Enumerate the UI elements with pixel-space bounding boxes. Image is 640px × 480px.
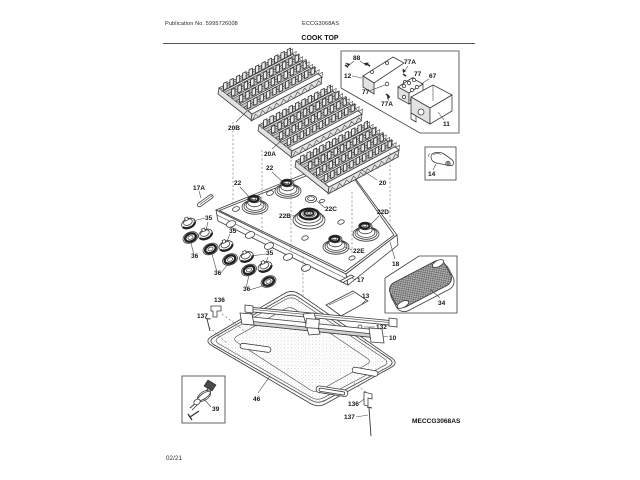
svg-text:34: 34: [438, 300, 446, 307]
svg-text:36: 36: [243, 286, 251, 293]
svg-text:10: 10: [389, 335, 397, 342]
svg-text:02/21: 02/21: [166, 455, 182, 462]
svg-text:35: 35: [266, 250, 274, 257]
svg-text:137: 137: [197, 313, 208, 320]
svg-text:35: 35: [229, 228, 237, 235]
svg-text:46: 46: [253, 396, 261, 403]
svg-text:137: 137: [344, 414, 355, 421]
svg-text:22E: 22E: [353, 248, 365, 255]
svg-text:COOK TOP: COOK TOP: [301, 35, 339, 42]
svg-text:39: 39: [212, 406, 220, 413]
svg-text:ECCG3068AS: ECCG3068AS: [302, 21, 339, 27]
svg-text:67: 67: [429, 73, 437, 80]
svg-text:18: 18: [392, 261, 400, 268]
svg-text:22: 22: [234, 180, 242, 187]
svg-text:17: 17: [357, 277, 365, 284]
svg-text:20B: 20B: [228, 125, 240, 132]
svg-text:35: 35: [205, 215, 213, 222]
svg-text:136: 136: [214, 297, 225, 304]
svg-text:20: 20: [379, 180, 387, 187]
svg-text:12: 12: [344, 73, 352, 80]
svg-text:88: 88: [353, 55, 361, 62]
svg-text:22D: 22D: [377, 209, 389, 216]
svg-text:136: 136: [348, 401, 359, 408]
svg-text:11: 11: [443, 121, 450, 128]
svg-text:20A: 20A: [264, 151, 276, 158]
svg-text:14: 14: [428, 171, 436, 178]
svg-text:22: 22: [266, 165, 274, 172]
svg-text:77: 77: [362, 89, 370, 96]
svg-text:36: 36: [191, 253, 199, 260]
svg-text:17A: 17A: [193, 185, 205, 192]
svg-text:13: 13: [362, 293, 370, 300]
svg-text:77A: 77A: [381, 101, 393, 108]
svg-text:MECCG3068AS: MECCG3068AS: [412, 418, 461, 425]
svg-text:Publication No. 5995726008: Publication No. 5995726008: [165, 21, 238, 27]
svg-text:22C: 22C: [325, 206, 337, 213]
svg-text:77A: 77A: [404, 59, 416, 66]
svg-text:77: 77: [414, 71, 422, 78]
svg-text:22B: 22B: [279, 213, 291, 220]
